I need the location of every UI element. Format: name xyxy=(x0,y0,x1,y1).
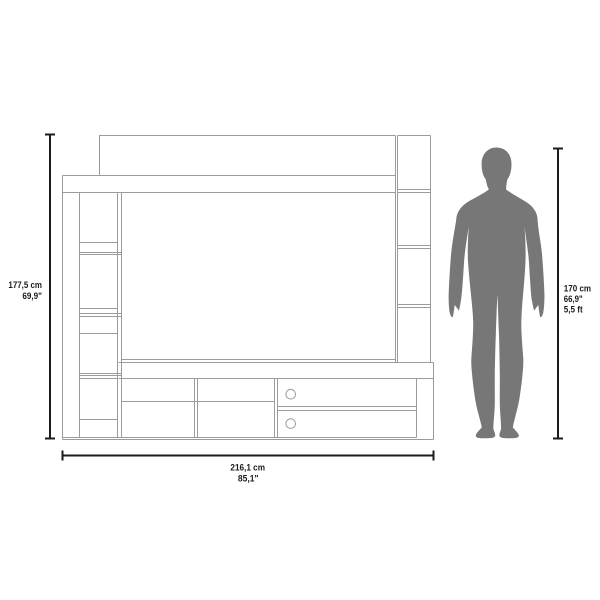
svg-text:170 cm: 170 cm xyxy=(564,283,591,294)
svg-text:5,5 ft: 5,5 ft xyxy=(564,305,584,316)
svg-text:177,5 cm: 177,5 cm xyxy=(8,280,42,291)
svg-text:66,9": 66,9" xyxy=(564,294,583,305)
svg-text:85,1": 85,1" xyxy=(238,473,259,484)
svg-text:216,1 cm: 216,1 cm xyxy=(230,463,265,474)
svg-text:69,9": 69,9" xyxy=(22,291,42,302)
